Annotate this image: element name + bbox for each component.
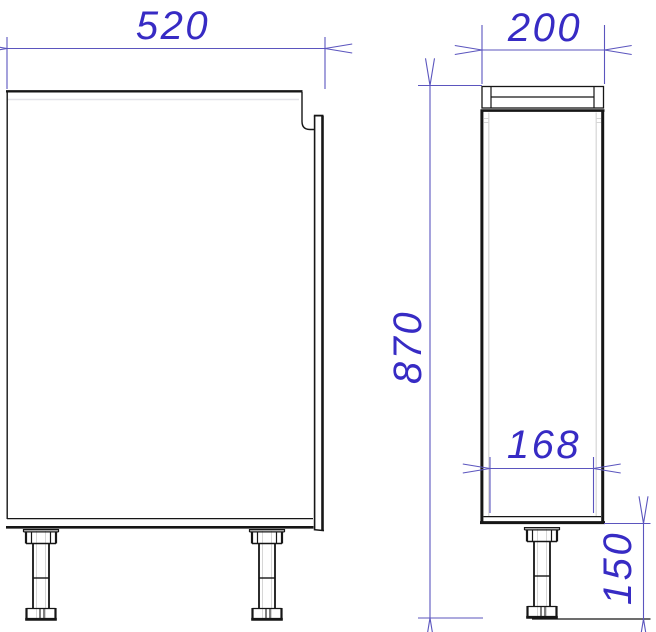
dim-width: 520: [7, 4, 325, 89]
dim-inner-width: 168: [490, 423, 594, 513]
front-view: [6, 91, 324, 620]
dim-depth: 200: [482, 6, 605, 84]
front-right-leg: [250, 529, 285, 620]
front-left-leg: [24, 529, 59, 620]
front-door-edge: [314, 116, 324, 531]
dim-height-value: 870: [386, 310, 430, 384]
side-top-frame: [482, 87, 604, 109]
drawing-canvas: 520 200 870 168 150: [0, 0, 656, 632]
dim-inner-width-value: 168: [507, 423, 581, 467]
dim-leg-height: 150: [596, 524, 651, 620]
dim-leg-height-value: 150: [596, 531, 640, 605]
side-leg: [525, 527, 560, 618]
dim-height: 870: [386, 86, 483, 619]
cabinet-dimension-drawing: 520 200 870 168 150: [0, 0, 656, 632]
dim-depth-value: 200: [507, 6, 582, 50]
dim-width-value: 520: [136, 4, 210, 48]
